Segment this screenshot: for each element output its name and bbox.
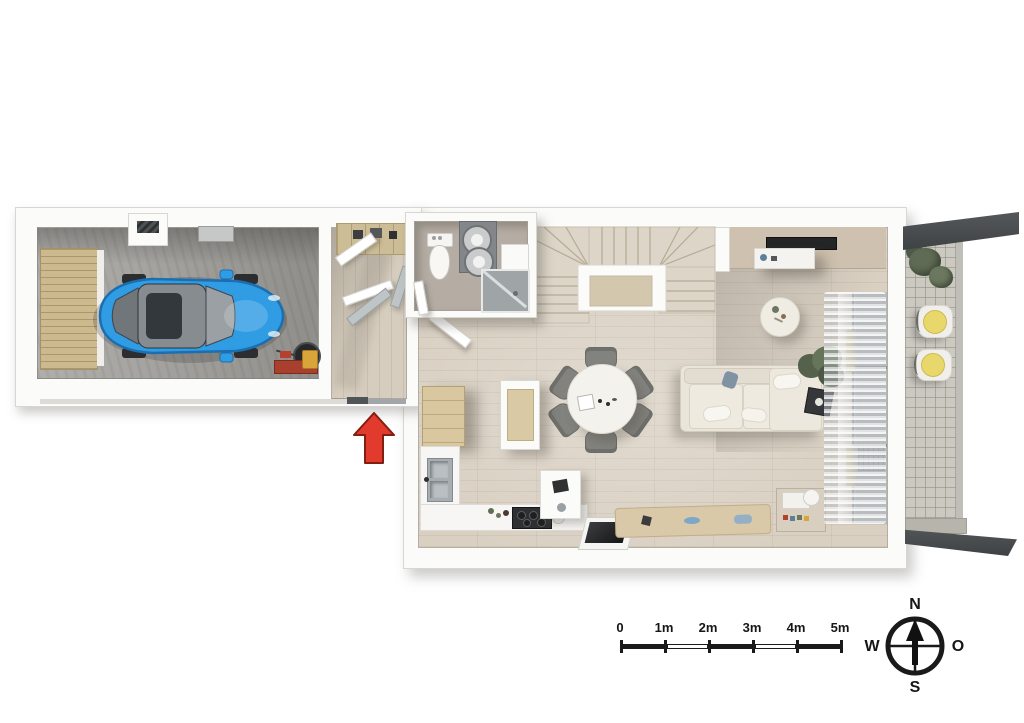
terrace-chair — [918, 305, 953, 338]
scale-label-1m: 1m — [650, 620, 678, 635]
shower-glass — [481, 269, 527, 309]
toy-print — [734, 514, 752, 523]
car-mirror — [220, 353, 233, 362]
table-plate — [598, 399, 602, 403]
chair-armrest — [916, 310, 925, 332]
scale-label-4m: 4m — [782, 620, 810, 635]
car-headlight — [268, 331, 280, 337]
table-decor-plant — [772, 306, 779, 313]
entrance-threshold — [347, 397, 368, 404]
shower — [481, 269, 530, 313]
table-plate — [612, 398, 617, 401]
compass-rose — [884, 615, 946, 677]
toilet — [426, 233, 452, 281]
staircase — [530, 225, 720, 325]
scale-segment — [623, 644, 664, 649]
floor-plan-canvas: 0 1m 2m 3m 4m 5m N S W O — [0, 0, 1024, 723]
chair-armrest — [914, 354, 923, 375]
scale-label-5m: 5m — [826, 620, 854, 635]
scale-segment — [755, 644, 796, 649]
scale-segment — [799, 644, 840, 649]
counter-plant — [496, 513, 501, 518]
chair-cushion — [923, 310, 947, 334]
baby-care-unit — [776, 488, 826, 532]
terrace-chair — [916, 349, 952, 381]
table-decor — [781, 314, 786, 319]
toy-fish — [684, 517, 700, 524]
chair-cushion — [921, 353, 945, 377]
kitchen-sink — [427, 458, 453, 502]
toy-block — [641, 515, 652, 526]
compass-label-north: N — [903, 596, 927, 614]
entrance-arrow-icon — [353, 412, 395, 464]
desk-stool — [557, 503, 566, 512]
shower-drain — [513, 291, 518, 296]
console-decor — [771, 256, 777, 261]
play-mat — [615, 504, 772, 538]
sheer-curtain — [824, 292, 886, 524]
niche-vent-icon — [137, 221, 159, 233]
compass-label-south: S — [903, 679, 927, 697]
stair-opening — [590, 276, 652, 306]
table-card — [577, 394, 595, 412]
scale-label-2m: 2m — [694, 620, 722, 635]
scale-bar: 0 1m 2m 3m 4m 5m — [600, 618, 860, 658]
compass-label-east: O — [946, 638, 970, 656]
table-plate — [606, 402, 610, 406]
island-wood-top — [507, 389, 534, 441]
counter-plant — [488, 508, 494, 514]
car-top-view — [86, 266, 290, 366]
toy-dot — [790, 516, 795, 521]
scale-label-0: 0 — [606, 620, 634, 635]
garage-niche — [128, 213, 168, 246]
kitchen-desk — [540, 470, 581, 519]
car-roof — [146, 293, 182, 339]
scale-label-3m: 3m — [738, 620, 766, 635]
toy-dot — [783, 515, 788, 520]
bathroom-room — [405, 212, 537, 318]
wardrobe-item — [389, 231, 397, 239]
scale-bar-strip — [620, 640, 843, 653]
scale-segment — [711, 644, 752, 649]
bush — [929, 266, 953, 288]
cup — [814, 397, 823, 406]
car-headlight — [268, 295, 280, 301]
counter-pot — [503, 510, 509, 516]
coffee-table — [760, 297, 800, 337]
kitchen-island — [500, 380, 540, 450]
toy-dot — [797, 515, 802, 520]
desk-printer — [552, 479, 569, 493]
scale-segment — [667, 644, 708, 649]
fuel-can — [302, 350, 318, 369]
compass-label-west: W — [860, 638, 884, 656]
console-decor-vase — [760, 254, 767, 261]
car-mirror — [220, 270, 233, 279]
diaper-pail — [803, 489, 820, 506]
tool-part — [280, 351, 291, 358]
kitchen-tall-cabinet — [422, 386, 465, 447]
dining-table — [567, 364, 637, 434]
faucet — [424, 477, 429, 482]
toy-dot — [804, 516, 809, 521]
tv-console — [754, 248, 815, 269]
terrace-rail — [956, 240, 963, 528]
garage-ceiling-vent — [198, 226, 234, 242]
entrance-step — [368, 399, 406, 404]
